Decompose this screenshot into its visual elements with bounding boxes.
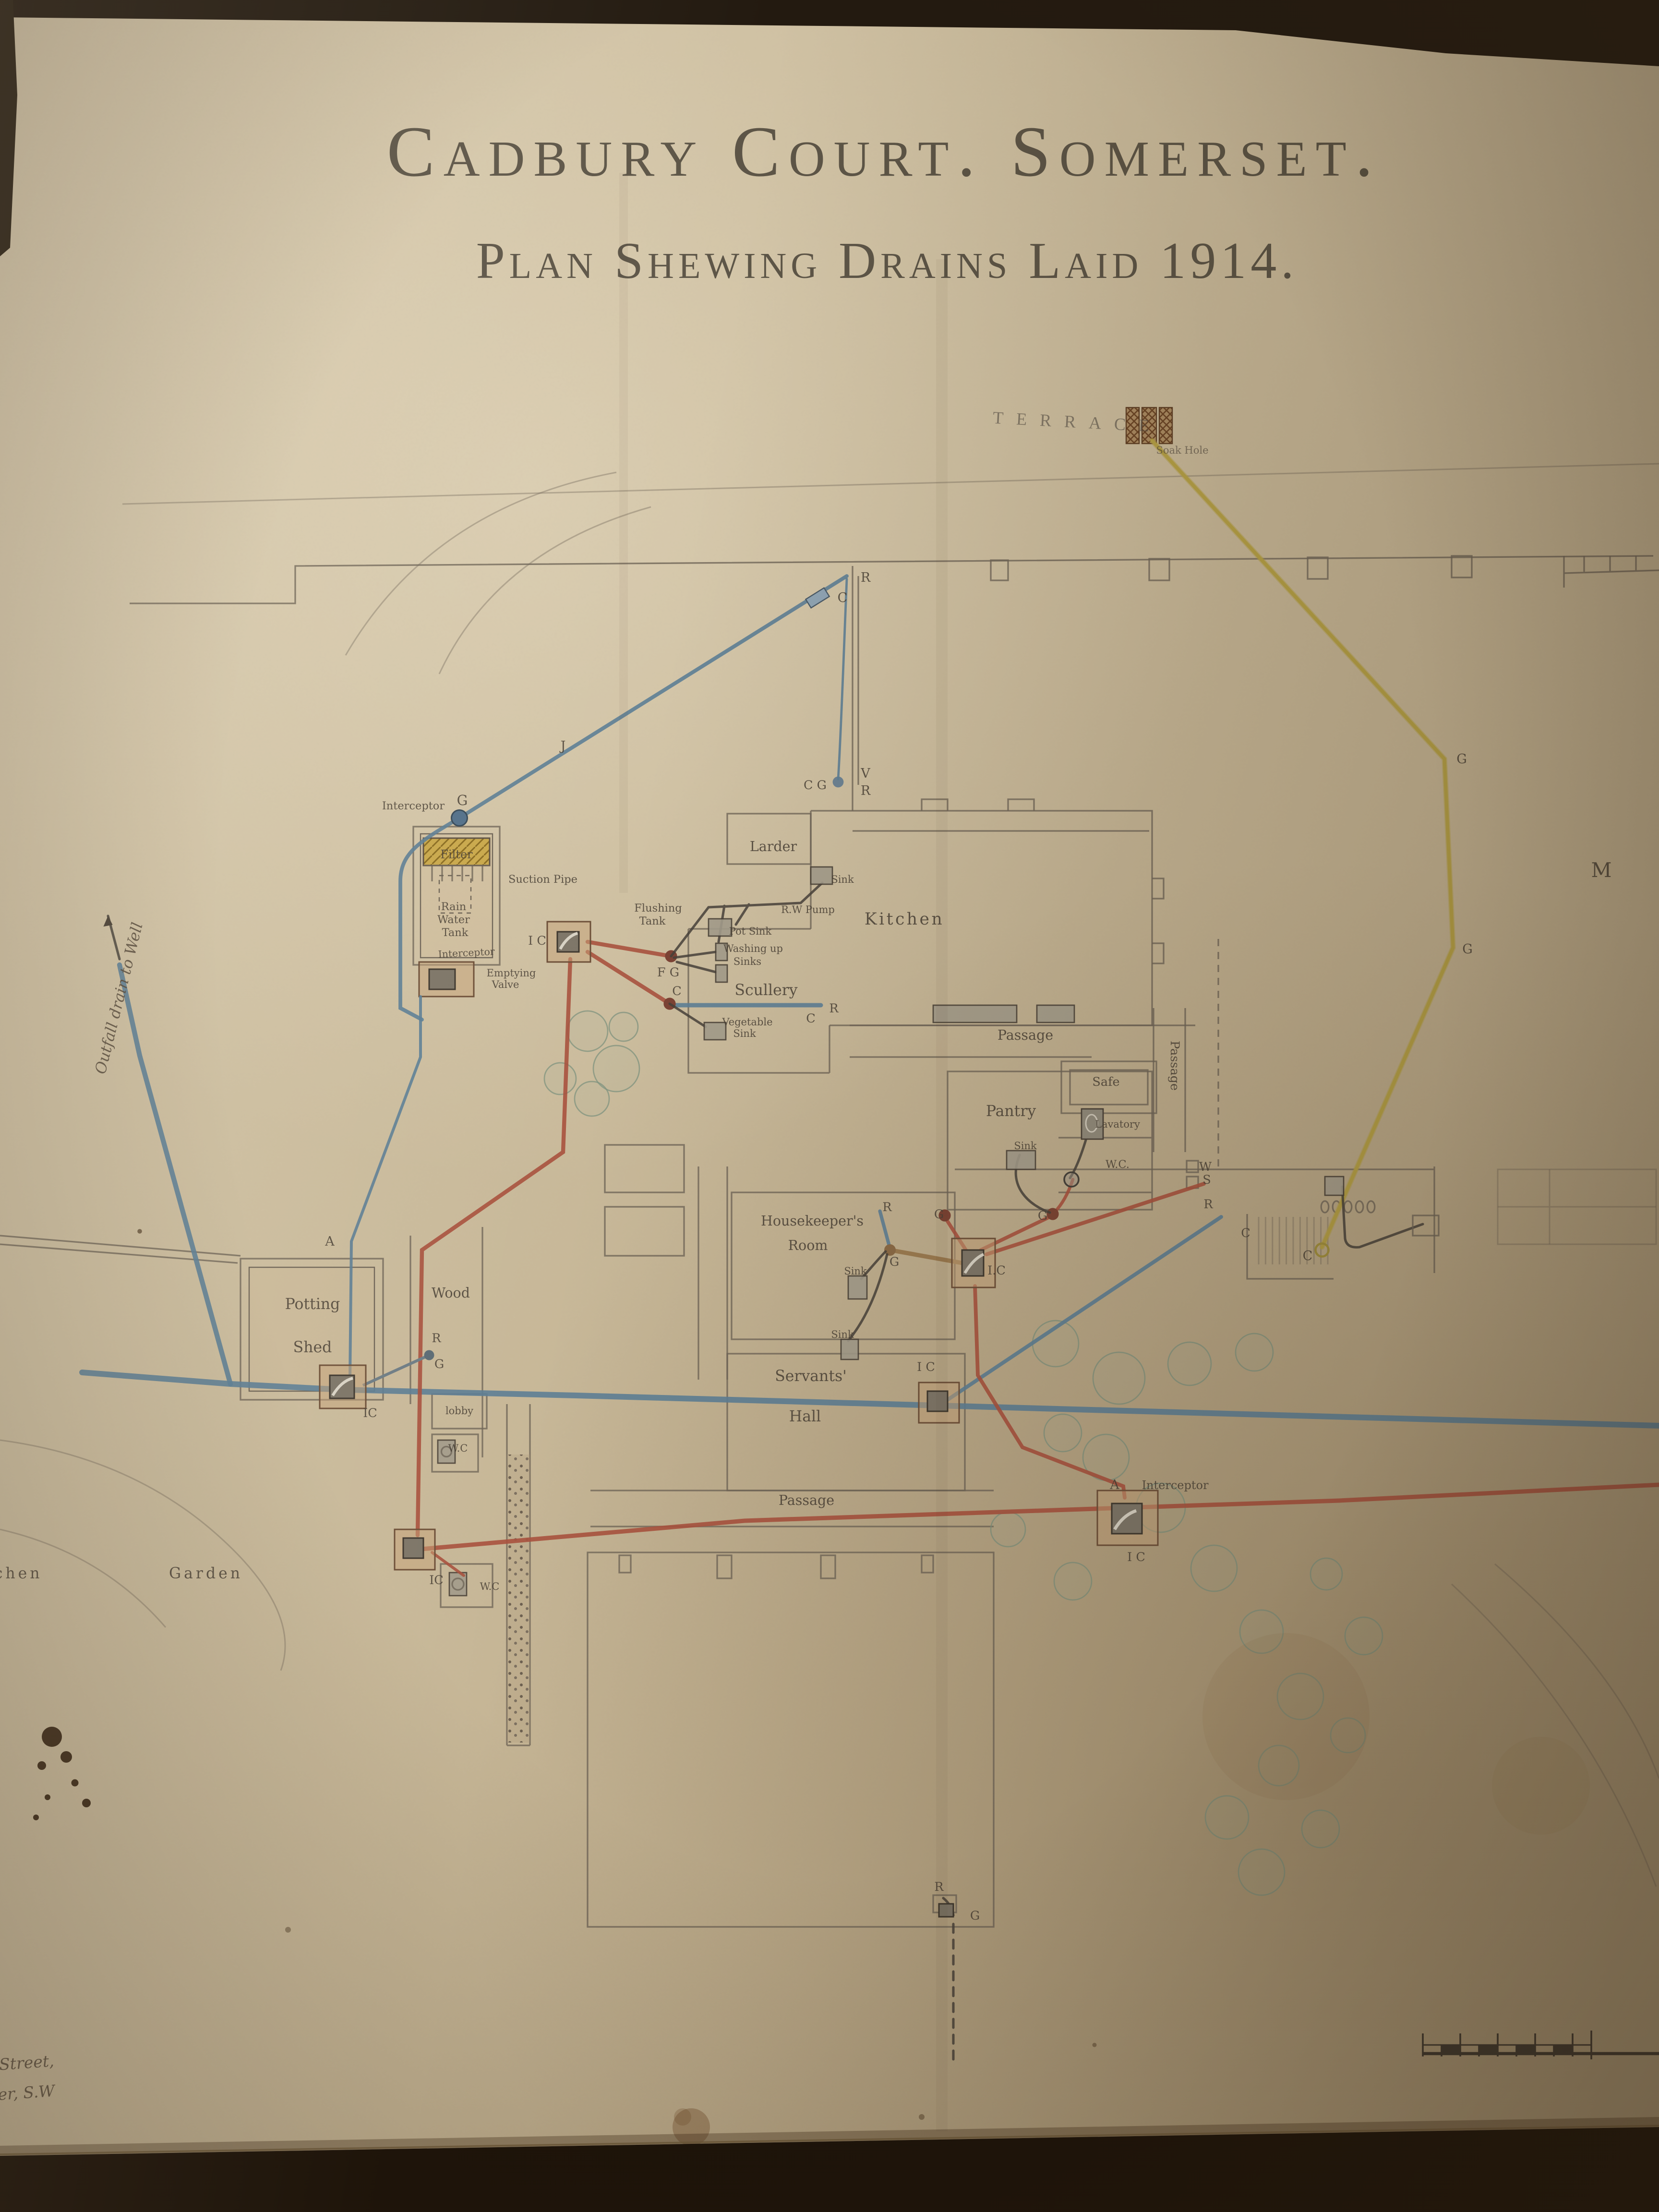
plan-label-74: IC	[429, 1573, 444, 1587]
plan-label-28: Tank	[639, 915, 666, 927]
plan-label-43: Safe	[1092, 1075, 1119, 1089]
plan-label-17: Filter	[440, 848, 473, 861]
plan-label-42: Passage	[998, 1027, 1053, 1043]
plan-label-37: R	[829, 1001, 839, 1016]
plan-label-8: R	[861, 570, 871, 585]
plan-label-60: Sink	[831, 1329, 854, 1340]
plan-label-36: C	[806, 1011, 816, 1026]
plan-label-50: S	[1202, 1173, 1211, 1187]
plan-label-35: C	[672, 984, 682, 998]
plan-label-52: C	[1241, 1226, 1250, 1240]
plan-label-79: I C	[1127, 1550, 1145, 1564]
plan-label-67: Potting	[285, 1296, 340, 1313]
plan-label-57: Housekeeper's	[761, 1213, 864, 1229]
plan-label-7: M	[1591, 858, 1611, 882]
paper-grain-texture	[0, 0, 1659, 2212]
plan-label-10: J	[559, 739, 566, 754]
plan-label-4: G	[1456, 752, 1467, 767]
plan-label-34: Sink	[733, 1028, 756, 1039]
plan-label-11: V	[860, 766, 870, 781]
plan-label-21: Tank	[442, 926, 469, 939]
plan-label-6: C	[1303, 1249, 1313, 1263]
plan-label-33: Vegetable	[721, 1016, 772, 1028]
plan-label-20: Water	[437, 914, 470, 926]
plan-label-5: G	[1462, 942, 1473, 957]
plan-label-9: C	[838, 590, 848, 605]
plan-label-46: Sink	[1014, 1140, 1037, 1152]
plan-label-76: Passage	[779, 1492, 834, 1508]
plan-label-73: W.C	[448, 1443, 468, 1454]
plan-label-3: Soak Hole	[1156, 445, 1208, 456]
plan-label-1: Plan Shewing Drains Laid 1914.	[476, 232, 1298, 289]
plan-label-18: Suction Pipe	[508, 873, 577, 886]
plan-label-71: IC	[363, 1406, 377, 1420]
plan-label-78: Interceptor	[1142, 1479, 1209, 1492]
plan-label-41: Kitchen	[865, 910, 944, 929]
plan-label-29: Pot Sink	[729, 926, 772, 937]
plan-label-32: Scullery	[734, 982, 797, 999]
plan-label-16: G	[457, 793, 468, 808]
plan-label-47: W.C.	[1106, 1158, 1130, 1171]
plan-label-68: Shed	[293, 1339, 332, 1356]
plan-label-81: Garden	[169, 1565, 243, 1582]
plan-label-82: R	[934, 1880, 944, 1894]
plan-label-49: W	[1199, 1160, 1212, 1174]
plan-label-19: Rain	[441, 901, 467, 913]
plan-label-70: G	[434, 1357, 444, 1371]
plan-label-44: Pantry	[986, 1103, 1036, 1120]
plan-svg: Cadbury Court. Somerset.Plan Shewing Dra…	[0, 0, 1659, 2212]
plan-label-77: A	[1109, 1478, 1119, 1492]
plan-label-45: Lavatory	[1095, 1118, 1140, 1130]
plan-label-31: Sinks	[733, 956, 761, 967]
plan-label-48: Passage	[1167, 1041, 1182, 1091]
plan-label-64: Hall	[789, 1408, 821, 1425]
plan-label-38: Larder	[750, 839, 797, 854]
plan-label-39: Sink	[831, 874, 854, 885]
plan-label-75: W.C	[480, 1581, 500, 1592]
plan-label-23: Emptying	[487, 967, 536, 979]
plan-label-66: A	[325, 1234, 335, 1249]
plan-label-59: Sink	[844, 1265, 867, 1277]
plan-label-55: G	[890, 1255, 899, 1269]
plan-label-72: lobby	[445, 1405, 473, 1417]
plan-label-15: Interceptor	[382, 800, 445, 812]
plan-label-24: Valve	[492, 979, 519, 990]
plan-label-62: I C	[917, 1360, 935, 1374]
plan-label-83: G	[970, 1909, 980, 1923]
plan-label-27: Flushing	[634, 902, 682, 914]
plan-label-12: R	[861, 783, 871, 798]
framed-plan-photo: Cadbury Court. Somerset.Plan Shewing Dra…	[0, 0, 1659, 2212]
garden-wall-stipple	[507, 1455, 530, 1743]
plan-label-26: F G	[657, 965, 679, 980]
plan-label-80: Kitchen	[0, 1565, 43, 1582]
plan-label-0: Cadbury Court. Somerset.	[387, 112, 1382, 192]
plan-label-65: Wood	[432, 1285, 470, 1301]
plan-label-13: C G	[804, 778, 827, 793]
plan-label-54: R	[882, 1200, 892, 1214]
plan-label-63: Servants'	[775, 1368, 847, 1385]
plan-label-30: Washing up	[723, 943, 783, 954]
plan-label-40: R.W Pump	[781, 904, 835, 915]
plan-label-25: I C	[528, 934, 546, 948]
plan-label-61: I.C	[987, 1263, 1006, 1278]
plan-label-51: R	[1203, 1197, 1213, 1212]
plan-label-58: Room	[788, 1238, 828, 1253]
plan-label-69: R	[432, 1331, 441, 1346]
plan-label-56: G	[934, 1207, 944, 1222]
plan-label-53: G	[1038, 1209, 1047, 1223]
